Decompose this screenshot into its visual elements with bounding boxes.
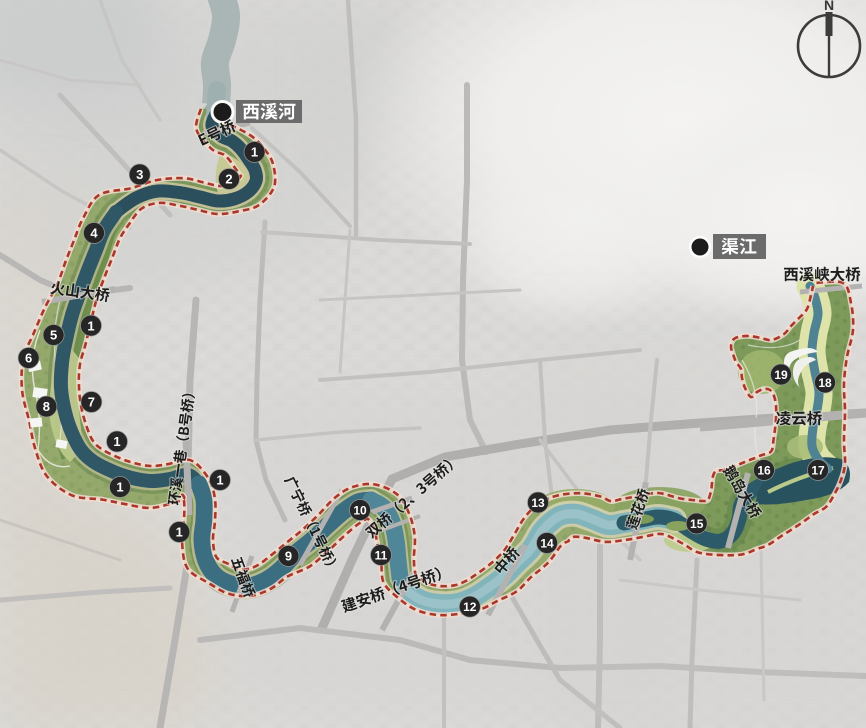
svg-text:12: 12 bbox=[463, 600, 477, 614]
svg-text:5: 5 bbox=[50, 328, 57, 343]
svg-text:11: 11 bbox=[375, 548, 388, 562]
svg-text:1: 1 bbox=[216, 473, 223, 488]
svg-text:13: 13 bbox=[531, 496, 545, 510]
svg-text:8: 8 bbox=[43, 399, 50, 414]
svg-text:6: 6 bbox=[25, 351, 32, 366]
svg-text:2: 2 bbox=[225, 172, 232, 187]
svg-text:1: 1 bbox=[251, 145, 258, 160]
svg-text:17: 17 bbox=[811, 463, 825, 477]
svg-text:15: 15 bbox=[690, 517, 704, 531]
svg-text:14: 14 bbox=[540, 536, 554, 550]
svg-text:3: 3 bbox=[136, 167, 143, 182]
svg-text:16: 16 bbox=[757, 463, 771, 477]
svg-text:9: 9 bbox=[285, 549, 292, 564]
svg-text:1: 1 bbox=[87, 318, 94, 333]
svg-text:N: N bbox=[824, 0, 834, 13]
svg-text:19: 19 bbox=[774, 368, 788, 382]
svg-text:4: 4 bbox=[90, 226, 98, 241]
svg-text:1: 1 bbox=[176, 525, 183, 540]
svg-text:18: 18 bbox=[818, 376, 832, 390]
svg-text:1: 1 bbox=[116, 480, 123, 495]
svg-text:1: 1 bbox=[113, 434, 120, 449]
svg-text:7: 7 bbox=[88, 395, 95, 410]
svg-text:10: 10 bbox=[353, 503, 367, 517]
